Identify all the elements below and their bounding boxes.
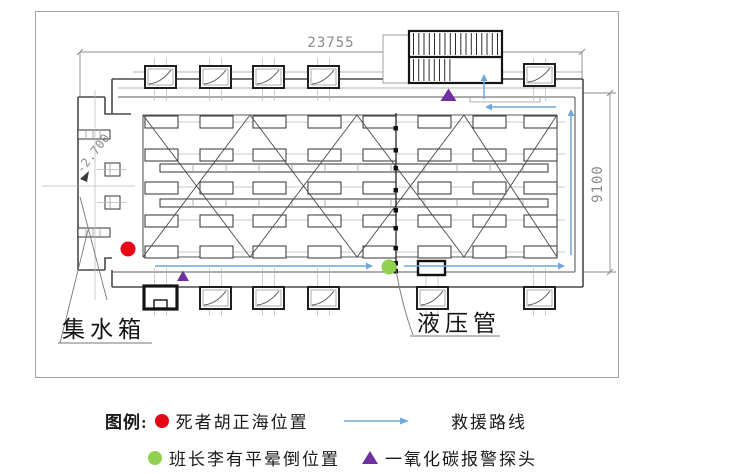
- accident-scene-diagram: 23755 9100 -2.700: [0, 0, 738, 474]
- purple-triangle-icon: [362, 451, 378, 464]
- legend-item-rescue-route: 救援路线: [341, 408, 527, 433]
- legend-title: 图例:: [105, 408, 148, 433]
- dimension-right-height-value: 9100: [590, 165, 606, 203]
- legend-item-label: 死者胡正海位置: [176, 408, 309, 433]
- legend-item-deceased: 图例: 死者胡正海位置: [105, 408, 309, 433]
- equipment-truss-area: [143, 115, 565, 258]
- foreman-fainted-position-marker: [382, 260, 397, 275]
- pump-block: [418, 261, 445, 275]
- rescue-route-arrow-icon: [341, 415, 413, 427]
- legend-item-label: 救援路线: [451, 408, 527, 433]
- water-tank-structure: -2.700: [42, 90, 152, 343]
- dimension-top-width-value: 23755: [307, 35, 354, 51]
- machine-room-walls: [112, 72, 583, 287]
- hydraulic-pipe-label: 液压管: [417, 311, 501, 336]
- co-alarm-probe-marker-top: [441, 89, 457, 102]
- deceased-position-marker: [121, 242, 136, 257]
- legend-item-label: 班长李有平晕倒位置: [169, 445, 340, 470]
- legend-item-foreman: 班长李有平晕倒位置: [148, 445, 340, 470]
- legend-item-co-probe: 一氧化碳报警探头: [362, 445, 537, 470]
- bottom-support-squares: [144, 286, 555, 309]
- red-dot-icon: [155, 414, 169, 428]
- green-dot-icon: [148, 451, 162, 465]
- plan-drawing: 23755 9100 -2.700: [0, 0, 738, 474]
- legend-item-label: 一氧化碳报警探头: [385, 445, 537, 470]
- water-tank-label: 集水箱: [62, 317, 146, 342]
- dimension-right-height: 9100: [583, 90, 616, 275]
